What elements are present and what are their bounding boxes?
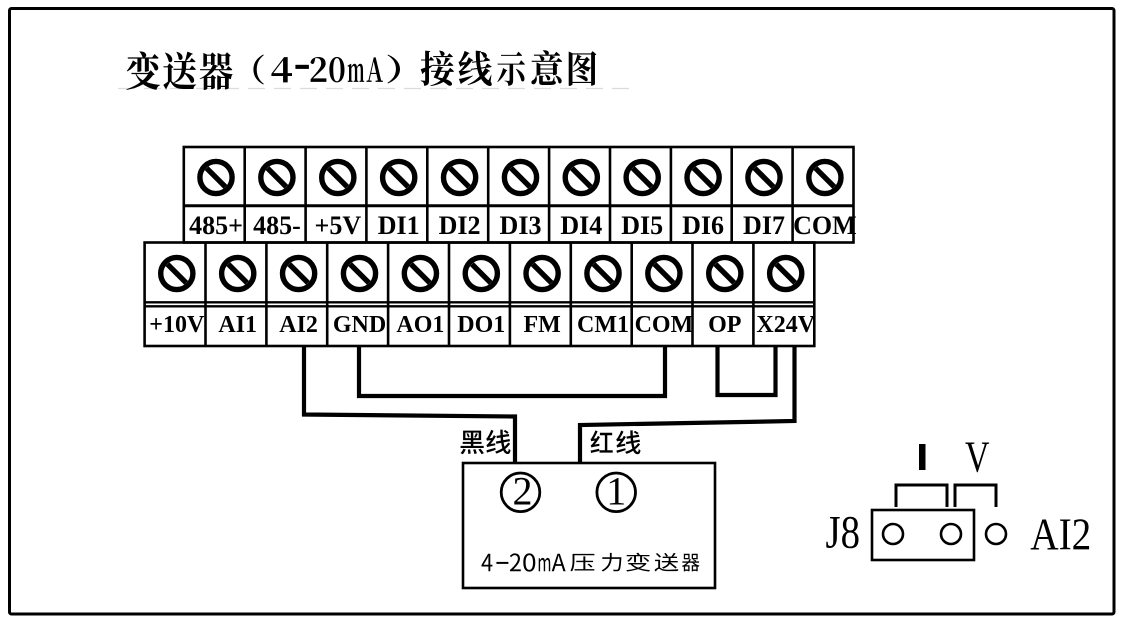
svg-text:AO1: AO1 [396, 312, 444, 338]
svg-text:COM: COM [793, 211, 857, 240]
svg-text:1: 1 [606, 469, 626, 514]
svg-text:+10V: +10V [149, 312, 205, 338]
svg-text:DI7: DI7 [743, 211, 785, 240]
svg-text:485-: 485- [253, 211, 301, 240]
svg-text:CM1: CM1 [577, 312, 629, 338]
svg-text:2: 2 [513, 469, 533, 514]
svg-text:DI2: DI2 [439, 211, 481, 240]
svg-text:FM: FM [523, 312, 560, 338]
svg-text:DI6: DI6 [682, 211, 724, 240]
svg-text:GND: GND [333, 312, 386, 338]
svg-text:DI5: DI5 [621, 211, 663, 240]
svg-text:J8: J8 [826, 507, 861, 559]
svg-text:+5V: +5V [315, 211, 362, 240]
svg-text:X24V: X24V [756, 312, 815, 338]
svg-text:DO1: DO1 [457, 312, 505, 338]
svg-text:OP: OP [708, 312, 741, 338]
svg-text:COM: COM [635, 312, 694, 338]
svg-text:485+: 485+ [189, 211, 243, 240]
svg-text:DI3: DI3 [500, 211, 542, 240]
svg-text:DI4: DI4 [560, 211, 602, 240]
svg-text:AI2: AI2 [279, 312, 318, 338]
svg-text:AI1: AI1 [218, 312, 257, 338]
svg-text:AI2: AI2 [1030, 510, 1091, 560]
svg-text:DI1: DI1 [378, 211, 420, 240]
svg-text:V: V [965, 433, 990, 482]
